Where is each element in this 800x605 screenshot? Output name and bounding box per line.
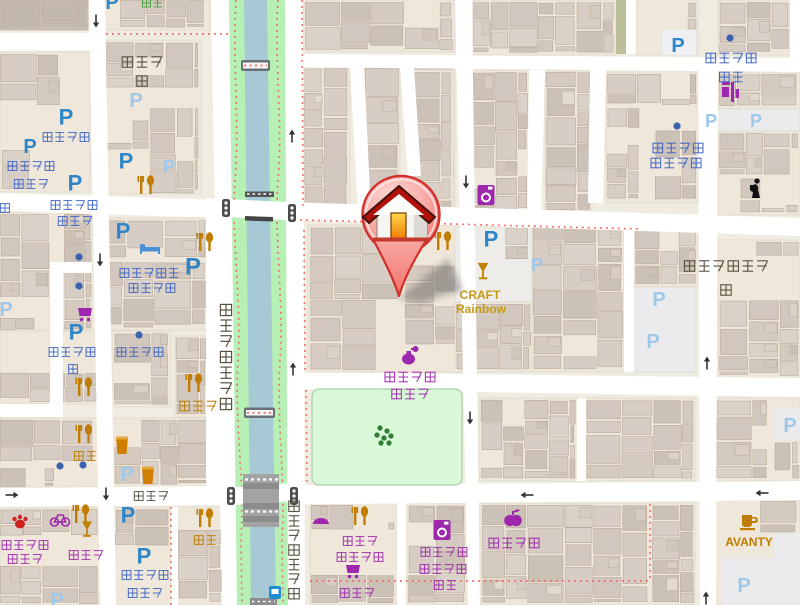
svg-text:P: P <box>68 171 83 196</box>
svg-text:P: P <box>646 331 659 353</box>
svg-text:P: P <box>783 415 796 437</box>
svg-text:P: P <box>121 503 136 528</box>
svg-text:P: P <box>119 149 134 174</box>
svg-text:P: P <box>129 90 142 112</box>
svg-text:P: P <box>105 0 118 14</box>
svg-text:AVANTY: AVANTY <box>725 535 773 549</box>
svg-text:P: P <box>671 35 684 57</box>
svg-text:P: P <box>652 289 665 311</box>
svg-text:P: P <box>185 254 201 281</box>
svg-text:P: P <box>137 544 152 569</box>
svg-text:P: P <box>50 590 63 605</box>
svg-text:P: P <box>0 299 13 321</box>
svg-text:P: P <box>23 136 36 158</box>
svg-text:P: P <box>163 157 175 177</box>
svg-text:P: P <box>737 575 750 597</box>
svg-text:P: P <box>120 464 133 486</box>
svg-text:P: P <box>705 111 717 131</box>
svg-text:P: P <box>59 105 74 130</box>
svg-text:P: P <box>69 320 84 345</box>
svg-text:CRAFT: CRAFT <box>460 288 501 302</box>
svg-text:P: P <box>116 219 131 244</box>
svg-text:P: P <box>750 111 762 131</box>
svg-text:Rainbow: Rainbow <box>456 302 507 316</box>
svg-text:P: P <box>484 227 499 252</box>
svg-text:P: P <box>531 255 543 275</box>
